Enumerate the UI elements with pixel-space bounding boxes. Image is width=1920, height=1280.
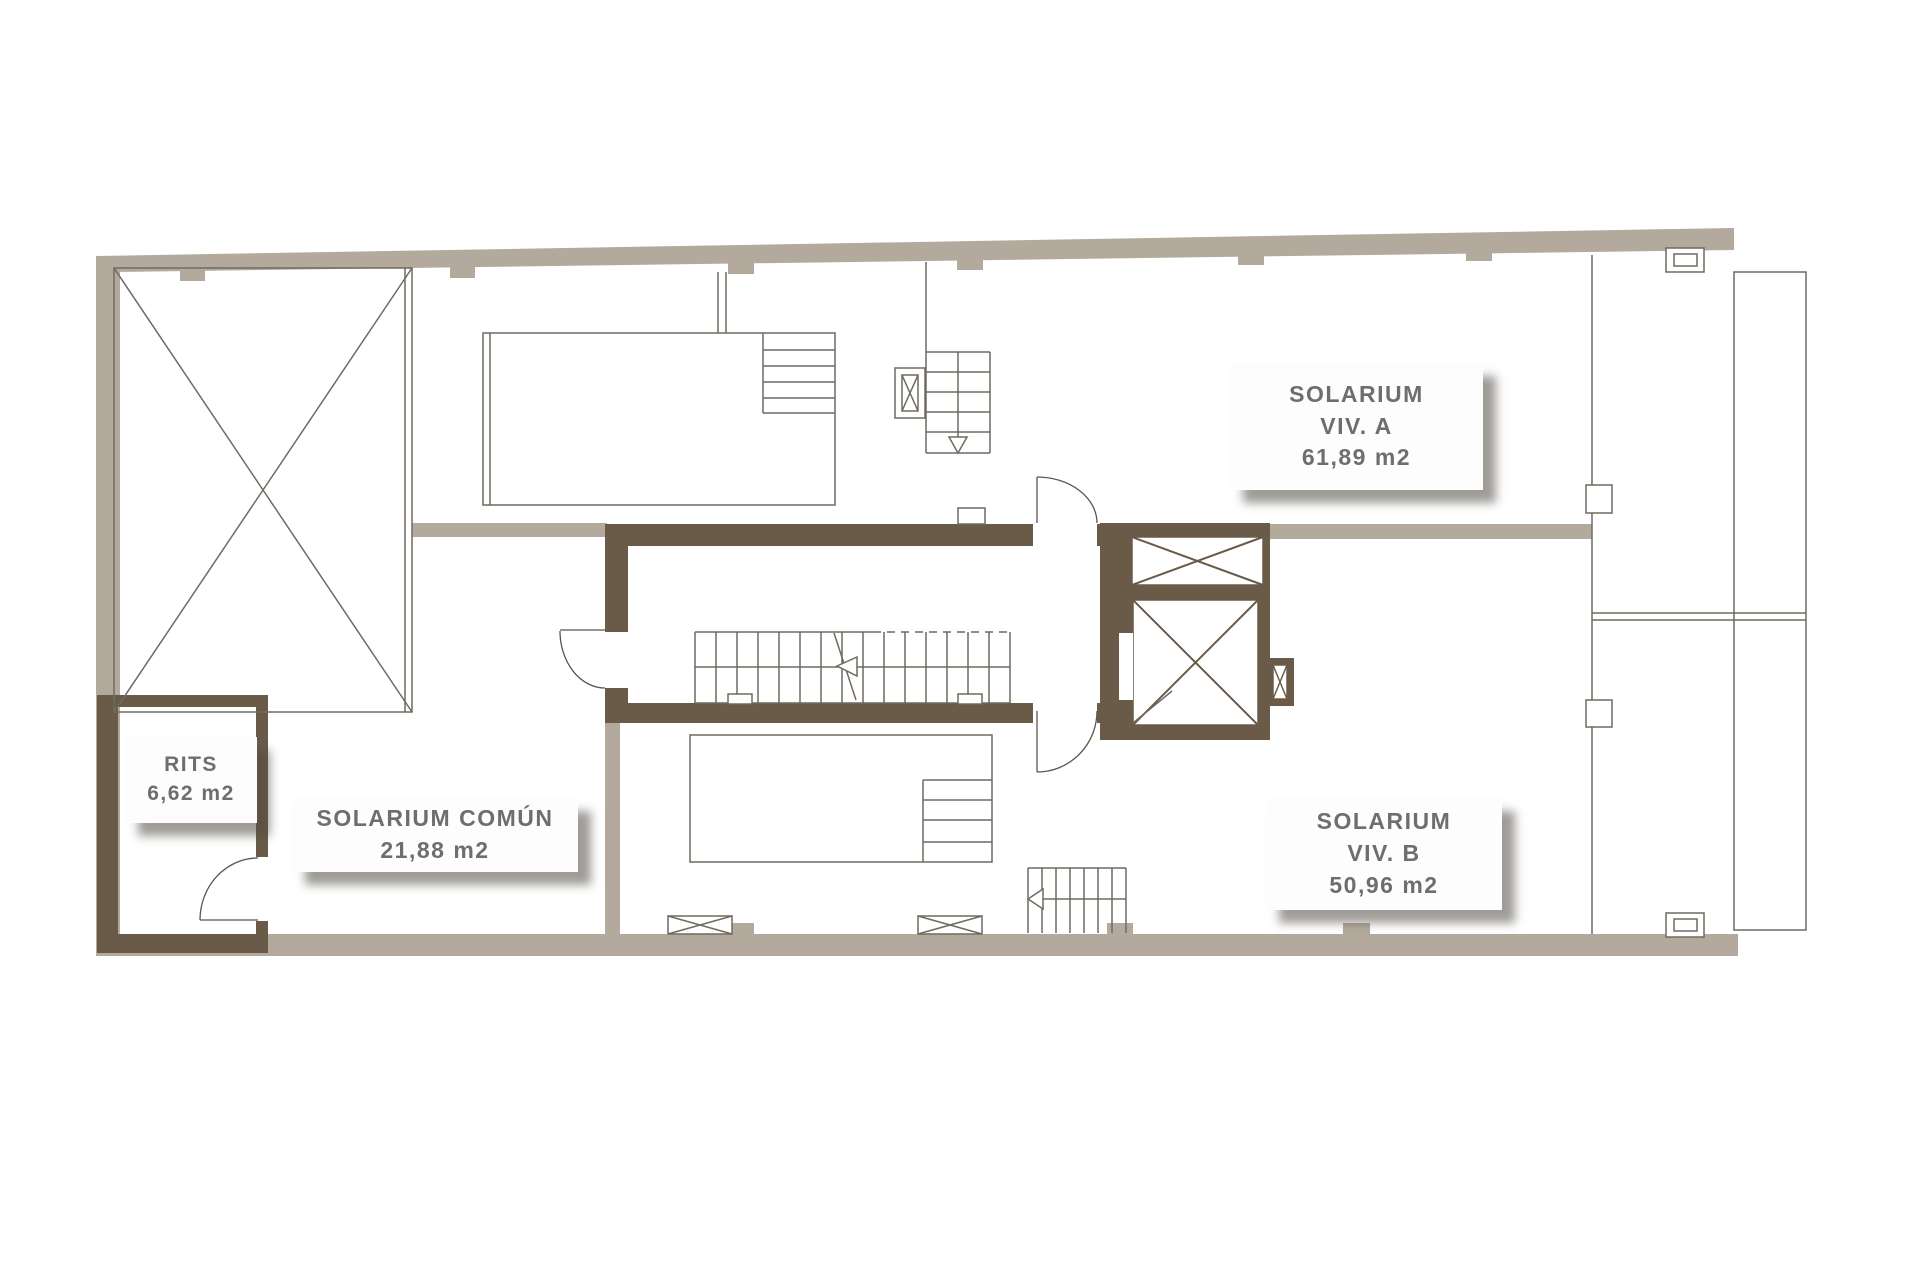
terrace-outline (1734, 272, 1806, 930)
wall-niche (958, 508, 985, 524)
room-name: SOLARIUM (1230, 379, 1483, 411)
stair-arrow-left-icon (1028, 889, 1043, 909)
label-solarium-viv-a: SOLARIUM VIV. A 61,89 m2 (1230, 363, 1483, 490)
wall-tab (1107, 923, 1133, 935)
wall-tab (1343, 923, 1370, 935)
stair-bottom (1028, 868, 1126, 933)
wall-tab (728, 261, 754, 274)
wall-tab (957, 257, 983, 270)
pool-upper-ladder (763, 333, 835, 413)
room-name: RITS (125, 751, 257, 780)
bottom-wall (96, 934, 1738, 956)
pool-lower-ladder (923, 780, 992, 862)
wall-tab (180, 269, 205, 281)
pool-lower (690, 735, 992, 862)
vent-top (1666, 248, 1704, 272)
pillar (1586, 700, 1612, 727)
void-x-area (114, 268, 412, 712)
pool-upper (483, 333, 835, 505)
stair-niche (728, 694, 752, 704)
stair-niche (958, 694, 982, 704)
room-area: 6,62 m2 (125, 780, 257, 809)
label-solarium-viv-b: SOLARIUM VIV. B 50,96 m2 (1266, 798, 1502, 910)
room-unit: VIV. B (1266, 838, 1502, 870)
divider-lines (718, 272, 726, 333)
rits-room-walls (97, 695, 268, 953)
pillar (1586, 485, 1612, 513)
bottom-wall-vents (668, 916, 982, 934)
void-x-icon (114, 268, 412, 712)
terrace-divider (1592, 613, 1806, 620)
floor-plan: SOLARIUM VIV. A 61,89 m2 SOLARIUM VIV. B… (0, 0, 1920, 1280)
room-area: 50,96 m2 (1266, 870, 1502, 902)
room-name: SOLARIUM (1266, 806, 1502, 838)
vent-bottom (1666, 913, 1704, 937)
wall-tab (1238, 252, 1264, 265)
right-terrace (1586, 248, 1806, 937)
room-name: SOLARIUM COMÚN (292, 803, 578, 835)
door-rits (200, 857, 268, 921)
door-core-top (1033, 477, 1097, 547)
room-unit: VIV. A (1230, 411, 1483, 443)
stair-top (926, 262, 990, 453)
room-area: 61,89 m2 (1230, 442, 1483, 474)
room-area: 21,88 m2 (292, 835, 578, 867)
wall-tab (450, 265, 475, 278)
label-rits: RITS 6,62 m2 (125, 737, 257, 823)
label-solarium-comun: SOLARIUM COMÚN 21,88 m2 (292, 798, 578, 872)
floor-plan-drawing (0, 0, 1920, 1280)
wall-tab (1466, 248, 1492, 261)
door-core-bottom (1033, 702, 1097, 772)
door-core-left (560, 630, 628, 688)
elevator-door-gap (1119, 633, 1133, 700)
elevator-shafts (1100, 523, 1294, 740)
stair-arrow-down-icon (949, 437, 967, 453)
vent-shaft-top (895, 368, 925, 418)
vent-shaft-x-icon (902, 375, 918, 411)
